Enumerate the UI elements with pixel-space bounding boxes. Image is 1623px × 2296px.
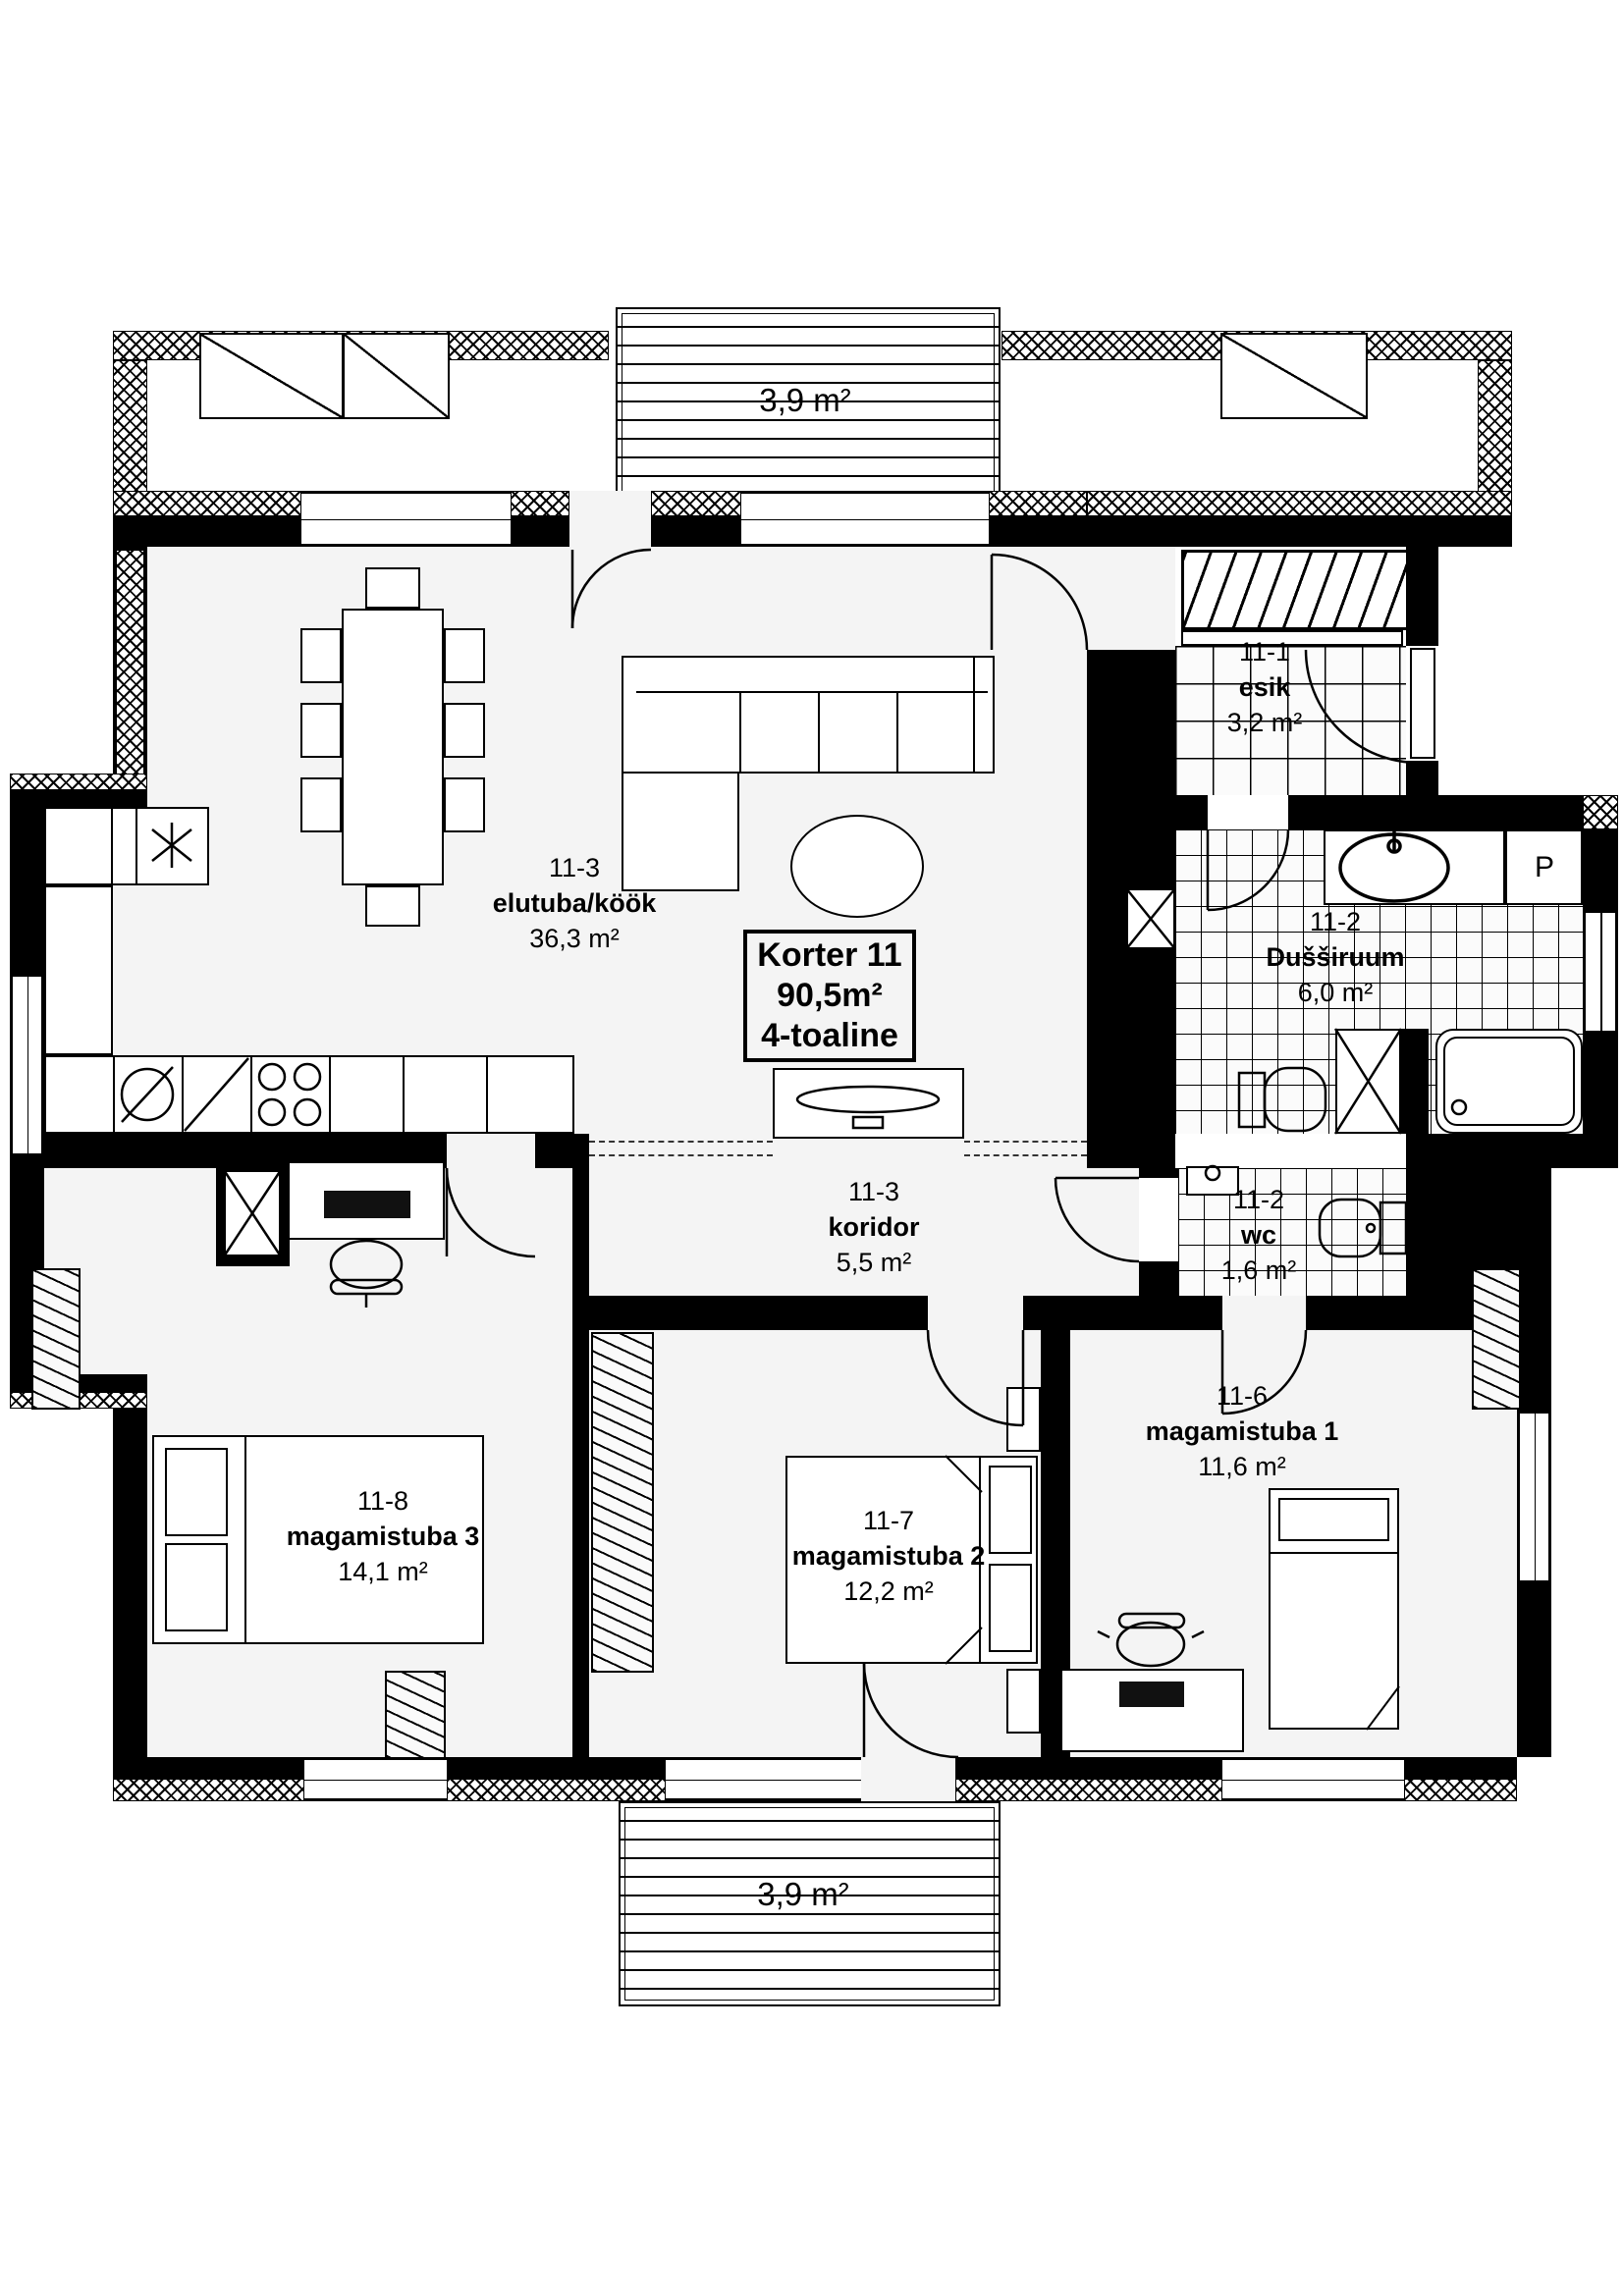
wall <box>1406 1134 1618 1168</box>
wall-insulation <box>1087 491 1512 516</box>
door-opening <box>447 1134 535 1168</box>
dining-chair <box>300 777 342 832</box>
wall <box>1517 1580 1551 1757</box>
window <box>666 1757 861 1801</box>
dining-chair <box>444 777 485 832</box>
door-opening <box>1208 795 1288 829</box>
wall <box>1517 1168 1551 1414</box>
dining-table <box>342 609 444 885</box>
room-code: 11-6 <box>1146 1378 1339 1414</box>
counter-divider <box>113 1057 115 1132</box>
door-opening <box>928 1296 1023 1330</box>
door-opening <box>1087 547 1175 650</box>
apartment-name: Korter 11 <box>755 935 904 976</box>
counter-divider <box>329 1057 331 1132</box>
sofa-divider <box>818 693 820 772</box>
wall <box>535 1134 589 1168</box>
monitor <box>324 1191 410 1218</box>
wall <box>1288 795 1618 829</box>
room-area: 3,2 m² <box>1227 705 1303 740</box>
bathtub-inner <box>1443 1037 1575 1126</box>
kitchen-counter-bottom <box>44 1055 574 1134</box>
monitor <box>1119 1682 1184 1707</box>
room-label-magamistuba3: 11-8 magamistuba 3 14,1 m² <box>287 1483 480 1589</box>
wall <box>1175 795 1208 829</box>
wall-insulation <box>113 1779 304 1801</box>
section-line <box>589 1141 773 1143</box>
window <box>741 491 989 547</box>
room-label-magamistuba2: 11-7 magamistuba 2 12,2 m² <box>792 1503 986 1609</box>
pillow <box>1278 1498 1389 1541</box>
wall-insulation <box>10 774 147 790</box>
section-line <box>964 1141 1087 1143</box>
room-label-dussiruum: 11-2 Dušširuum 6,0 m² <box>1266 904 1404 1010</box>
sofa-divider <box>896 693 898 772</box>
upper-window-1 <box>199 333 344 419</box>
wall-insulation <box>955 1779 1222 1801</box>
wall-insulation <box>1583 795 1618 829</box>
room-code: 11-2 <box>1266 904 1404 939</box>
room-name: magamistuba 3 <box>287 1519 480 1554</box>
dining-chair <box>365 885 420 927</box>
room-label-esik: 11-1 esik 3,2 m² <box>1227 634 1303 740</box>
entrance-door-leaf <box>1410 648 1435 759</box>
room-name: esik <box>1227 669 1303 705</box>
room-code: 11-7 <box>792 1503 986 1538</box>
room-area: 11,6 m² <box>1146 1449 1339 1484</box>
room-area: 14,1 m² <box>287 1554 480 1589</box>
washing-machine-label: P <box>1535 851 1554 884</box>
room-area: 36,3 m² <box>493 921 657 956</box>
nightstand <box>1006 1387 1041 1452</box>
wardrobe <box>31 1268 81 1410</box>
window <box>304 1757 447 1801</box>
wall-insulation <box>447 1779 666 1801</box>
wall-insulation <box>989 491 1087 516</box>
pillow <box>165 1543 228 1631</box>
wall <box>1023 1296 1222 1330</box>
window <box>1517 1414 1551 1580</box>
wall <box>1139 1168 1178 1178</box>
counter-divider <box>111 809 113 883</box>
counter-divider <box>486 1057 488 1132</box>
wall <box>1583 1031 1618 1139</box>
room-code: 11-8 <box>287 1483 480 1519</box>
counter-divider <box>250 1057 252 1132</box>
balcony-bottom-area-label: 3,9 m² <box>757 1876 849 1913</box>
window <box>10 977 44 1153</box>
floor-plan: P <box>0 0 1623 2296</box>
room-area: 1,6 m² <box>1221 1253 1297 1288</box>
room-label-magamistuba1: 11-6 magamistuba 1 11,6 m² <box>1146 1378 1339 1484</box>
room-name: magamistuba 1 <box>1146 1414 1339 1449</box>
wall-insulation <box>651 491 741 516</box>
corridor-nook-floor <box>1087 1168 1139 1296</box>
apartment-area: 90,5m² <box>755 976 904 1016</box>
dining-chair <box>300 703 342 758</box>
pillow <box>989 1564 1032 1652</box>
room-name: koridor <box>828 1209 919 1245</box>
wall-insulation <box>511 491 569 516</box>
room-code: 11-3 <box>828 1174 919 1209</box>
section-line <box>589 1154 773 1156</box>
room-name: elutuba/köök <box>493 885 657 921</box>
room-name: magamistuba 2 <box>792 1538 986 1574</box>
door-opening <box>861 1757 955 1801</box>
window <box>1583 913 1618 1031</box>
room-name: wc <box>1221 1217 1297 1253</box>
ventilation-shaft <box>1126 888 1175 949</box>
wall <box>1583 829 1618 913</box>
room-code: 11-3 <box>493 850 657 885</box>
upper-band-right-column <box>1478 360 1512 493</box>
room-area: 6,0 m² <box>1266 975 1404 1010</box>
dining-chair <box>444 703 485 758</box>
dining-chair <box>365 567 420 609</box>
door-opening <box>1222 1296 1306 1330</box>
upper-window-2 <box>343 333 450 419</box>
wall-insulation <box>1404 1779 1517 1801</box>
window <box>301 491 511 547</box>
wall <box>589 1296 928 1330</box>
bathroom-sink-counter <box>1324 829 1505 905</box>
sofa-armrest <box>973 658 975 772</box>
wall <box>113 1409 147 1757</box>
room-area: 12,2 m² <box>792 1574 986 1609</box>
door-opening <box>1139 1178 1178 1261</box>
counter-divider <box>182 1057 184 1132</box>
room-code: 11-1 <box>1227 634 1303 669</box>
room-name: Dušširuum <box>1266 939 1404 975</box>
wardrobe <box>1472 1268 1521 1410</box>
apartment-title-box: Korter 11 90,5m² 4-toaline <box>743 930 916 1062</box>
room-code: 11-2 <box>1221 1182 1297 1217</box>
living-room-floor <box>147 547 1087 1134</box>
dining-chair <box>300 628 342 683</box>
wall <box>1401 1029 1429 1134</box>
ventilation-shaft <box>224 1170 281 1256</box>
wall <box>572 1168 589 1757</box>
wall <box>1139 1261 1178 1296</box>
wall <box>1406 547 1438 646</box>
section-line <box>964 1154 1087 1156</box>
sofa <box>622 656 995 774</box>
wall-insulation <box>113 491 301 516</box>
tv-stand <box>773 1068 964 1139</box>
apartment-room-count: 4-toaline <box>755 1016 904 1056</box>
door-opening <box>569 491 651 547</box>
upper-band-left-column <box>113 360 147 493</box>
room-label-elutuba: 11-3 elutuba/köök 36,3 m² <box>493 850 657 956</box>
sofa-divider <box>739 693 741 772</box>
counter-divider <box>403 1057 405 1132</box>
room-label-koridor: 11-3 koridor 5,5 m² <box>828 1174 919 1280</box>
kitchen-counter-left <box>44 885 113 1055</box>
pillow <box>165 1448 228 1536</box>
counter-divider <box>135 809 137 883</box>
sofa-backrest-line <box>636 691 988 693</box>
wall <box>10 807 44 977</box>
room-label-wc: 11-2 wc 1,6 m² <box>1221 1182 1297 1288</box>
coffee-table <box>790 815 924 918</box>
balcony-top-area-label: 3,9 m² <box>759 382 851 419</box>
room-area: 5,5 m² <box>828 1245 919 1280</box>
wardrobe <box>385 1671 446 1759</box>
entrance-steps <box>1181 550 1409 630</box>
pillow <box>989 1466 1032 1554</box>
window <box>1222 1757 1404 1801</box>
wall-insulation <box>116 550 144 803</box>
nightstand <box>1006 1669 1041 1734</box>
dining-chair <box>444 628 485 683</box>
wardrobe <box>591 1332 654 1673</box>
upper-window-3 <box>1220 333 1368 419</box>
kitchen-counter-top <box>44 807 209 885</box>
shower-tray <box>1335 1029 1401 1134</box>
